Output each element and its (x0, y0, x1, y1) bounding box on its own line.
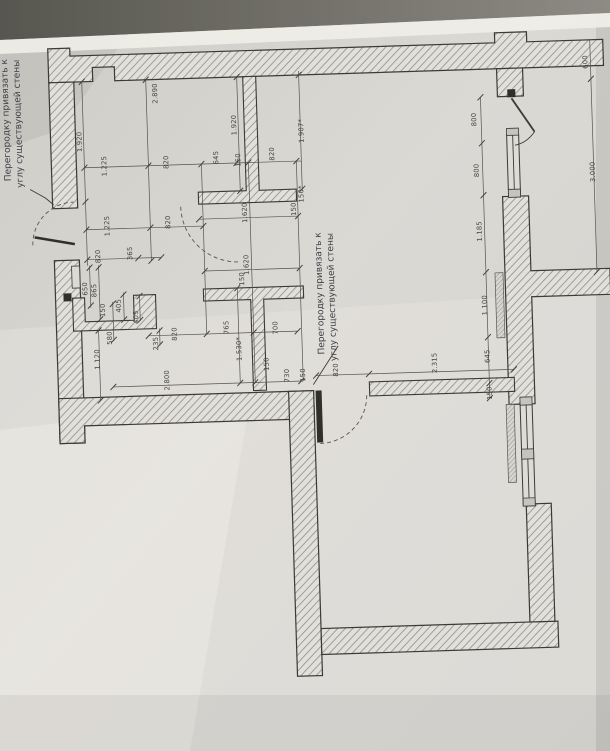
window-bottom-cap1 (520, 397, 532, 405)
dimension-label: 150 (290, 202, 298, 216)
dimension-label: 820 (171, 327, 179, 341)
dimension-label: 1.185 (475, 221, 484, 242)
dimension-label: 2.890 (151, 83, 160, 104)
dimension-label: 150* (297, 185, 306, 203)
dimension-label: 730 (283, 369, 291, 383)
dimension-label: 580 (106, 331, 114, 345)
dimension-label: 865 (90, 284, 98, 298)
dimension-label: 1.120 (93, 349, 102, 370)
dimension-label: 150 (299, 368, 307, 382)
dimension-label: 150 (234, 153, 242, 167)
dimension-label: 2.315 (430, 352, 439, 373)
dimension-label: 150 (262, 357, 270, 371)
dimension-label: 820 (332, 363, 340, 377)
dimension-label: 1.100 (481, 295, 490, 316)
dimension-label: 150 (238, 272, 246, 286)
dimension-label: 800 (470, 113, 478, 127)
dimension-label: 365 (126, 246, 134, 260)
window-top-cap2 (508, 189, 520, 197)
dimension-label: 600 (581, 55, 589, 69)
dimension-label: 820 (164, 215, 172, 229)
radiator-upper (495, 273, 505, 338)
dimension-label: 1.907* (297, 118, 306, 143)
dimension-label: 150 (486, 386, 494, 400)
dimension-label: 150 (99, 303, 107, 317)
dimension-label: 3.000 (589, 161, 598, 182)
dimension-label: 1.920 (75, 132, 84, 153)
floorplan-drawing: 2.8901.9201.2258206451508201.9201.907*1.… (0, 0, 610, 751)
dimension-label: 1.920 (230, 115, 239, 136)
dimension-label: 645 (212, 151, 220, 165)
dimension-label: 1.620 (241, 202, 250, 223)
wall-right-bottom-room (526, 503, 555, 622)
wall-niche (72, 266, 81, 288)
dimension-label: 1.225 (100, 156, 109, 177)
dimension-label: 1.225 (103, 216, 112, 237)
dimension-label: 765 (222, 320, 230, 334)
dimension-label: 700 (271, 321, 279, 335)
dimension-label: 800 (473, 164, 481, 178)
dimension-label: 405 (115, 299, 123, 313)
dimension-label: 405 (132, 310, 140, 324)
window-top-cap1 (506, 128, 518, 135)
window-bottom-cap2 (523, 498, 535, 506)
dimension-label: 2.800 (163, 370, 172, 391)
wall-block-detail (63, 293, 71, 301)
door-hinge-block (507, 89, 515, 97)
paper-shadow-right (596, 8, 610, 751)
dimension-label: 1.620 (242, 254, 251, 275)
dimension-label: 820 (162, 155, 170, 169)
dimension-label: 820 (94, 249, 102, 263)
dimension-label: 235 (152, 337, 160, 351)
dimension-label: 650 (81, 282, 89, 296)
dimension-label: 645 (483, 349, 491, 363)
wall-left-upper (49, 82, 78, 209)
window-bottom-mid-block (522, 449, 534, 459)
dimension-label: 1.530* (235, 336, 244, 361)
dimension-label: 820 (268, 147, 276, 161)
floorplan-photo: 2.8901.9201.2258206451508201.9201.907*1.… (0, 0, 610, 751)
paper-shadow-bottom (0, 695, 610, 751)
